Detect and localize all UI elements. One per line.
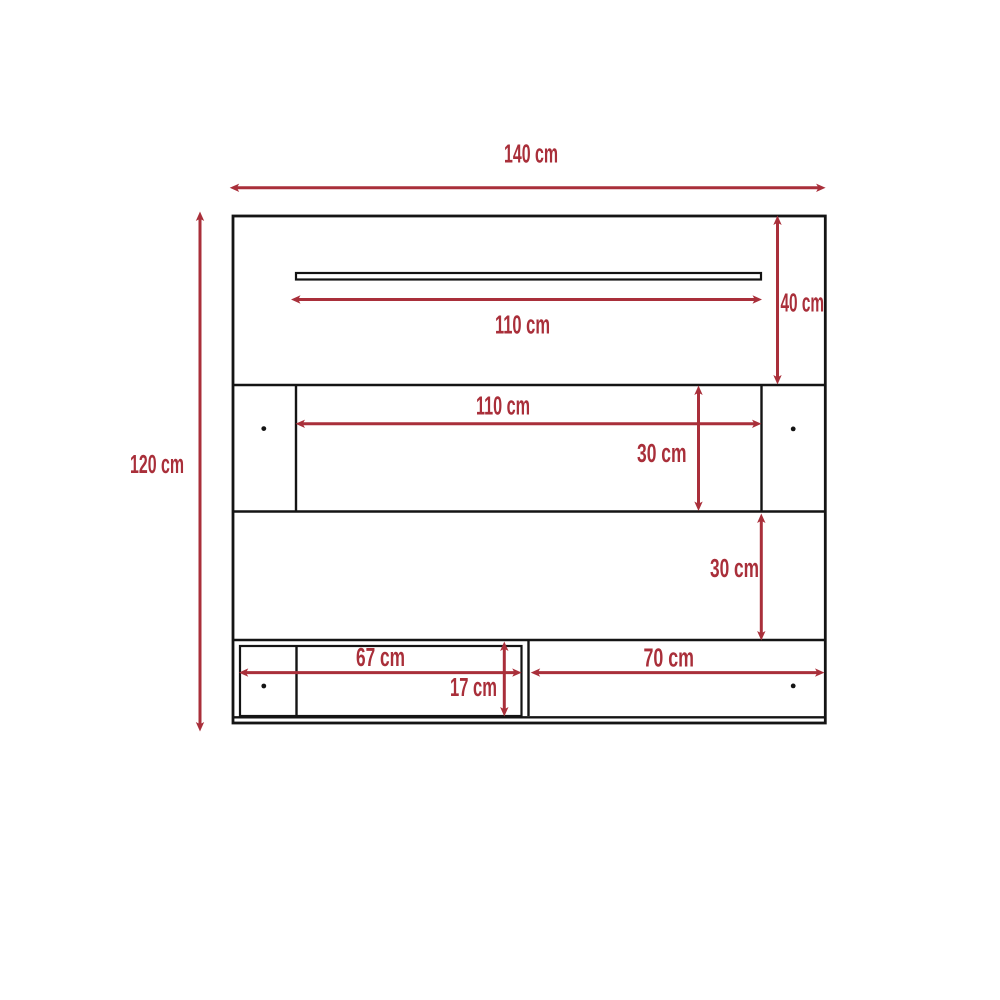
svg-text:120 cm: 120 cm — [130, 449, 184, 479]
svg-text:30 cm: 30 cm — [637, 438, 687, 468]
svg-text:70 cm: 70 cm — [644, 643, 695, 673]
svg-text:17 cm: 17 cm — [450, 672, 497, 702]
svg-text:110 cm: 110 cm — [476, 391, 530, 421]
svg-text:30 cm: 30 cm — [710, 553, 759, 583]
svg-text:110 cm: 110 cm — [495, 310, 550, 340]
svg-text:67 cm: 67 cm — [356, 642, 405, 672]
svg-text:140 cm: 140 cm — [504, 139, 558, 169]
svg-text:40 cm: 40 cm — [781, 288, 825, 318]
